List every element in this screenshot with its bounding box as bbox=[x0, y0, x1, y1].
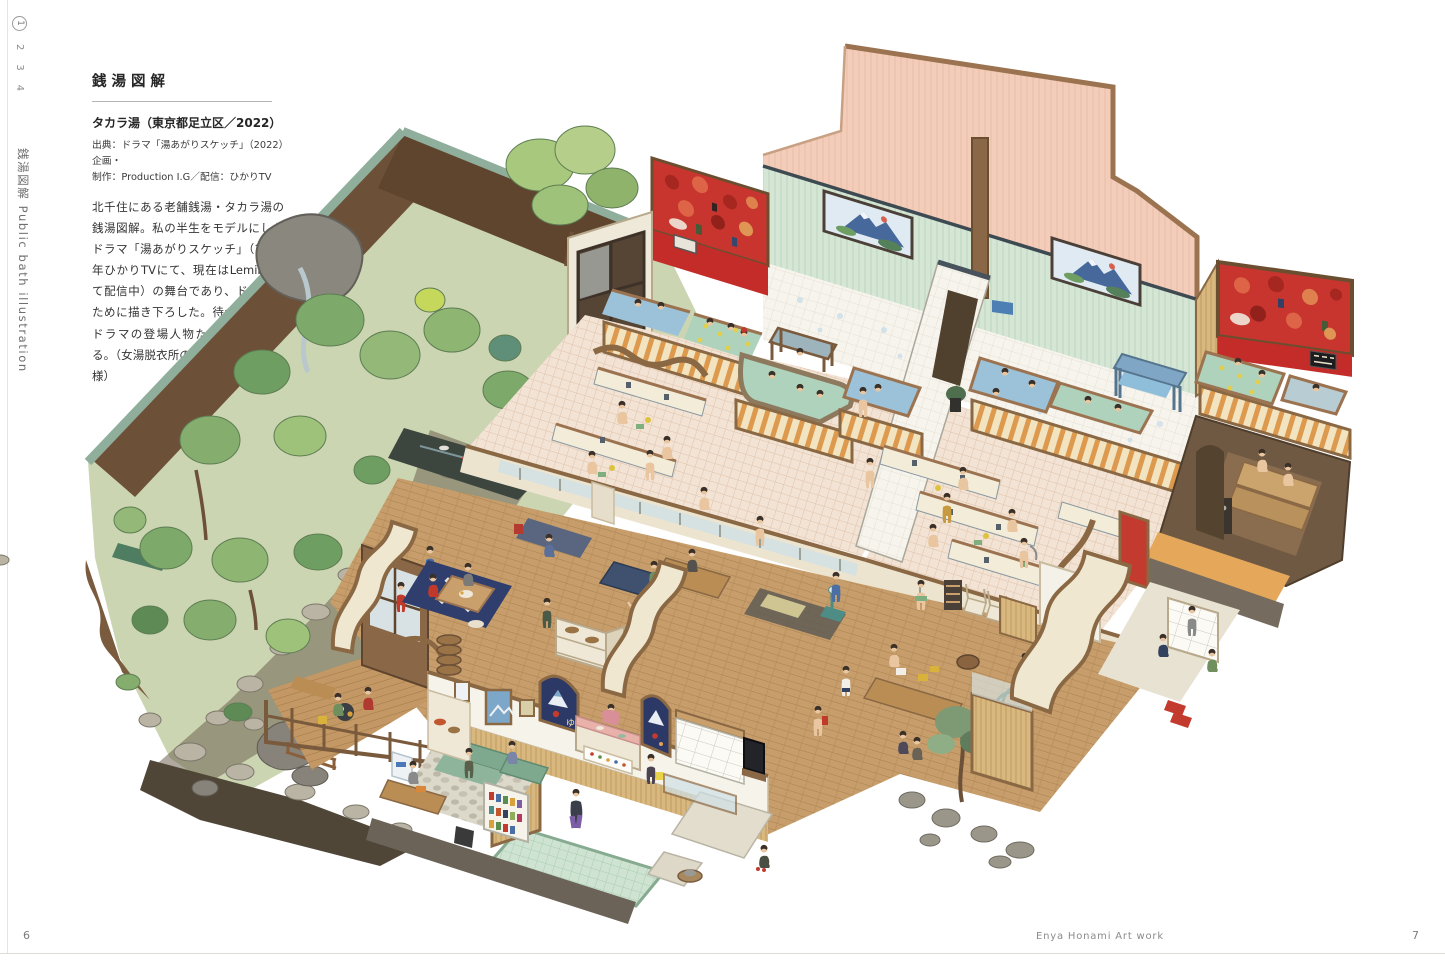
lobby-tv bbox=[742, 738, 766, 782]
book-page: 1 2 3 4 銭湯図解 Public bath illustration 銭湯… bbox=[0, 0, 1445, 964]
bathhouse-illustration: ゆ bbox=[0, 0, 1445, 964]
svg-text:ゆ: ゆ bbox=[566, 718, 575, 729]
noren-right bbox=[642, 696, 670, 756]
